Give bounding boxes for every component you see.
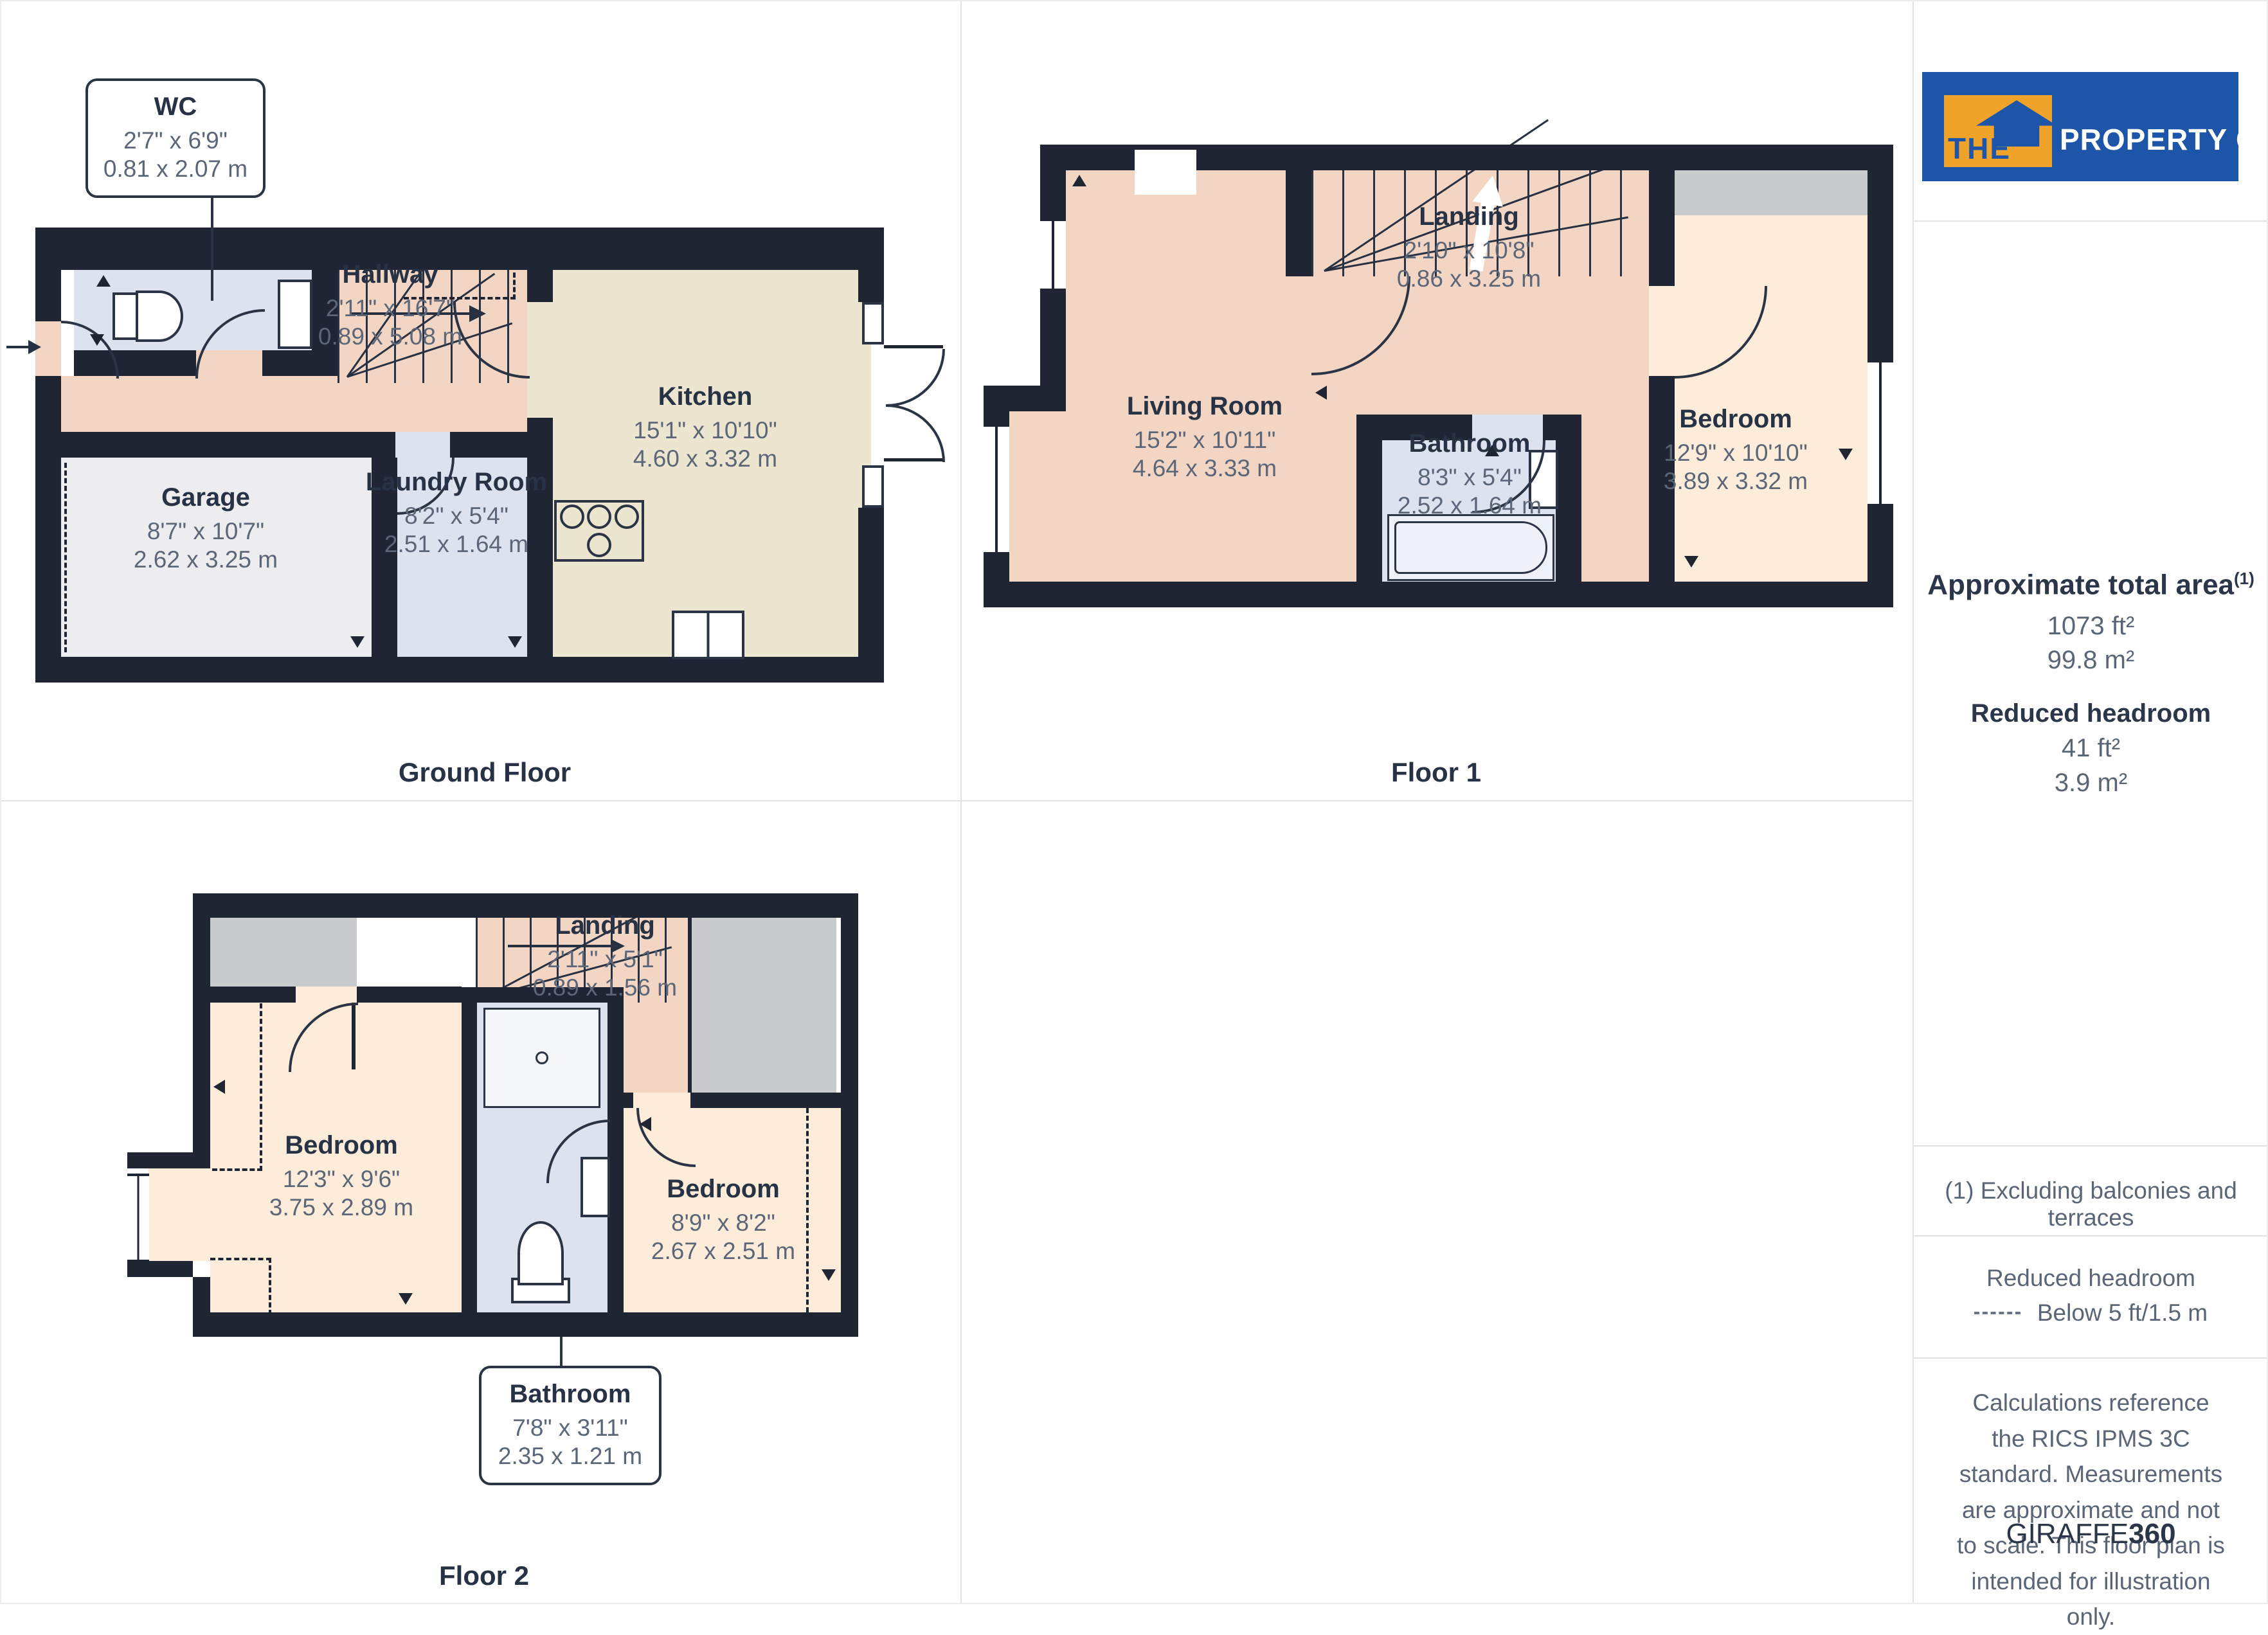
wall: [262, 350, 312, 376]
room-label-laundry: Laundry Room 8'2" x 5'4" 2.51 x 1.64 m: [366, 468, 547, 559]
total-area-m: 99.8 m²: [1914, 646, 2268, 675]
floor-label-1: Floor 1: [1391, 757, 1481, 788]
dashed-line-icon: [1974, 1312, 2021, 1314]
direction-marker-icon: [640, 1117, 651, 1131]
wall: [61, 432, 395, 458]
total-area-heading: Approximate total area(1): [1914, 569, 2268, 602]
reduced-headroom-dashed-line: [210, 1258, 271, 1315]
room-landing-f1: [1581, 437, 1649, 582]
disclaimer-text: Calculations reference the RICS IPMS 3C …: [1914, 1385, 2268, 1635]
entry-arrow-head-icon: [28, 340, 41, 354]
room-label-hallway: Hallway 2'11" x 16'7" 0.89 x 5.08 m: [318, 260, 462, 352]
sidebar-divider: [1914, 1235, 2268, 1237]
logo-the-text: THE: [1948, 131, 2011, 166]
window: [1868, 360, 1893, 506]
wall: [984, 582, 1893, 607]
bathtub-icon: [1387, 514, 1554, 581]
legend-item: Below 5 ft/1.5 m: [2037, 1300, 2208, 1327]
room-bedroom-left-bay: [148, 1168, 210, 1261]
direction-marker-icon: [1315, 386, 1327, 400]
wall: [35, 228, 61, 321]
panel-divider-vertical-1: [960, 0, 962, 1604]
bedroom-right-door-opening: [633, 1093, 690, 1108]
direction-marker-icon: [822, 1269, 836, 1281]
wall: [127, 1261, 193, 1277]
sidebar-divider: [1914, 1357, 2268, 1359]
laundry-door-opening: [395, 432, 450, 458]
wall: [841, 893, 858, 1337]
direction-marker-icon: [213, 1080, 225, 1094]
toilet-bowl-icon: [136, 290, 183, 342]
direction-marker-icon: [539, 421, 553, 433]
room-label-living: Living Room 15'2" x 10'11" 4.64 x 3.33 m: [1127, 392, 1282, 483]
wall: [1286, 170, 1311, 276]
french-door-arc: [886, 349, 945, 407]
floor-label-ground: Ground Floor: [399, 757, 571, 788]
wall: [462, 987, 477, 1312]
room-dim-imperial: 2'7" x 6'9": [94, 127, 256, 155]
direction-marker-icon: [508, 636, 522, 648]
wc-sink-icon: [278, 280, 312, 349]
direction-marker-icon: [1839, 449, 1853, 460]
direction-marker-icon: [96, 275, 111, 287]
area-footnote: (1) Excluding balconies and terraces: [1914, 1177, 2268, 1231]
wall: [357, 987, 462, 1003]
wall: [688, 918, 692, 1093]
wall: [858, 508, 884, 683]
panel-divider-horizontal: [0, 800, 1913, 801]
bathroom-f2-callout: Bathroom 7'8" x 3'11" 2.35 x 1.21 m: [479, 1366, 661, 1485]
reduced-headroom-ft: 41 ft²: [1914, 734, 2268, 763]
room-living: [1066, 170, 1286, 582]
wall: [35, 657, 884, 683]
sidebar-divider: [1914, 220, 2268, 222]
wall: [1543, 415, 1556, 440]
void-area: [690, 918, 836, 1093]
room-label-landing-f1: Landing 2'10" x 10'8" 0.86 x 3.25 m: [1397, 202, 1541, 294]
wall: [193, 893, 210, 1152]
entry-arrow-icon: [6, 346, 30, 348]
window: [984, 424, 1009, 555]
wall: [1556, 415, 1581, 582]
french-door-window: [862, 302, 884, 344]
room-label-bedroom-left: Bedroom 12'3" x 9'6" 3.75 x 2.89 m: [269, 1131, 413, 1222]
room-label-bedroom-right: Bedroom 8'9" x 8'2" 2.67 x 2.51 m: [651, 1175, 795, 1266]
shower-icon: [483, 1008, 600, 1108]
room-bedroom-f1: [1675, 215, 1868, 582]
window: [1040, 219, 1066, 291]
direction-marker-icon: [350, 636, 364, 648]
footnote-marker: (1): [2234, 569, 2254, 588]
wall: [624, 1093, 633, 1108]
window: [127, 1174, 149, 1262]
void-area: [210, 918, 357, 987]
bedroom-door-opening: [1649, 286, 1675, 376]
panel-divider-vertical-2: [1913, 0, 1914, 1604]
property-centre-logo: THE PROPERTY CENTRE: [1922, 72, 2238, 181]
room-label-bathroom-f1: Bathroom 8'3" x 5'4" 2.52 x 1.64 m: [1398, 429, 1542, 521]
logo-name-text: PROPERTY CENTRE: [2060, 122, 2268, 157]
toilet-bowl-icon: [517, 1221, 564, 1285]
room-dim-metric: 0.81 x 2.07 m: [94, 155, 256, 183]
reduced-headroom-dashed-line: [806, 1108, 811, 1312]
logo-orange-square: THE: [1944, 95, 2052, 167]
direction-marker-icon: [1684, 556, 1698, 567]
direction-marker-icon: [399, 1293, 413, 1305]
bedroom-left-door-opening: [296, 987, 357, 1003]
wc-callout: WC 2'7" x 6'9" 0.81 x 2.07 m: [85, 78, 265, 198]
hob-icon: [554, 500, 644, 562]
french-door-leaf: [884, 345, 943, 348]
bathroom-callout-leader-line: [560, 1337, 562, 1368]
room-label-garage: Garage 8'7" x 10'7" 2.62 x 3.25 m: [134, 483, 278, 575]
wall: [450, 432, 527, 458]
kitchen-sink-icon: [672, 611, 744, 659]
wall: [193, 893, 858, 918]
wall: [1649, 170, 1675, 286]
french-door-arc: [886, 404, 945, 462]
direction-marker-icon: [90, 334, 104, 346]
wc-callout-leader-line: [211, 190, 213, 301]
room-label-kitchen: Kitchen 15'1" x 10'10" 4.60 x 3.32 m: [633, 382, 777, 474]
wall: [858, 228, 884, 302]
reduced-headroom-m: 3.9 m²: [1914, 769, 2268, 798]
wall: [35, 376, 61, 683]
wall: [193, 1312, 858, 1337]
giraffe360-brand: GIRAFFE360: [1914, 1518, 2268, 1550]
wall: [984, 386, 1066, 411]
reduced-headroom-heading: Reduced headroom: [1914, 699, 2268, 728]
french-door-window: [862, 465, 884, 508]
room-hallway-corridor: [61, 376, 337, 432]
room-name: WC: [94, 93, 256, 121]
wall: [690, 1093, 841, 1108]
fireplace-icon: [1142, 175, 1189, 193]
room-label-landing-f2: Landing 2'11" x 5'1" 0.89 x 1.56 m: [533, 911, 677, 1003]
direction-marker-icon: [1072, 175, 1086, 186]
legend-row: Below 5 ft/1.5 m: [1914, 1300, 2268, 1327]
sidebar-divider: [1914, 1145, 2268, 1147]
kitchen-door-opening: [527, 302, 553, 418]
legend-title: Reduced headroom: [1914, 1265, 2268, 1292]
total-area-ft: 1073 ft²: [1914, 612, 2268, 641]
living-door-opening: [1286, 276, 1311, 389]
room-label-bedroom-f1: Bedroom 12'9" x 10'10" 3.89 x 3.32 m: [1664, 405, 1808, 496]
void-area: [1675, 170, 1868, 215]
wall: [527, 270, 553, 302]
floor-label-2: Floor 2: [439, 1560, 529, 1591]
wall: [127, 1152, 210, 1168]
garage-dashed-line: [64, 463, 69, 652]
room-living: [1009, 411, 1066, 582]
